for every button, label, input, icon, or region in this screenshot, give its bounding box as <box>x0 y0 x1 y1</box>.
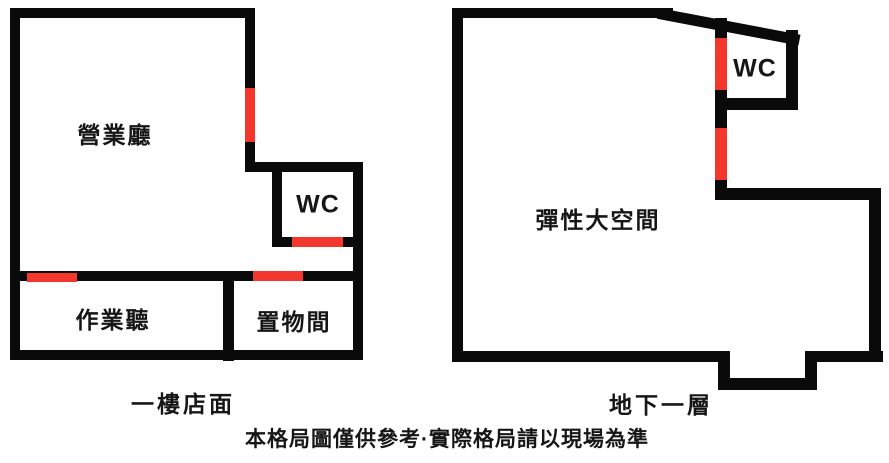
room-label-flexible-space: 彈性大空間 <box>536 201 661 235</box>
wall <box>657 8 801 46</box>
wall <box>715 188 881 200</box>
wall <box>718 378 817 390</box>
room-label-wc-b1: WC <box>733 55 777 84</box>
disclaimer-text: 本格局圖僅供參考·實際格局請以現場為準 <box>245 423 649 453</box>
door-marker <box>715 128 727 180</box>
wall <box>452 8 463 362</box>
wall <box>786 30 798 110</box>
wall <box>805 351 883 362</box>
floor-plan-canvas: 營業廳 WC 作業聽 置物間 一樓店面 WC 彈性大空間 地下一層 本格局 <box>0 0 889 463</box>
wall <box>452 8 673 18</box>
wall <box>452 351 730 362</box>
caption-basement: 地下一層 <box>609 386 713 420</box>
wall <box>869 188 881 362</box>
door-marker <box>715 38 727 90</box>
floor-plan-basement: WC 彈性大空間 地下一層 <box>0 0 889 463</box>
